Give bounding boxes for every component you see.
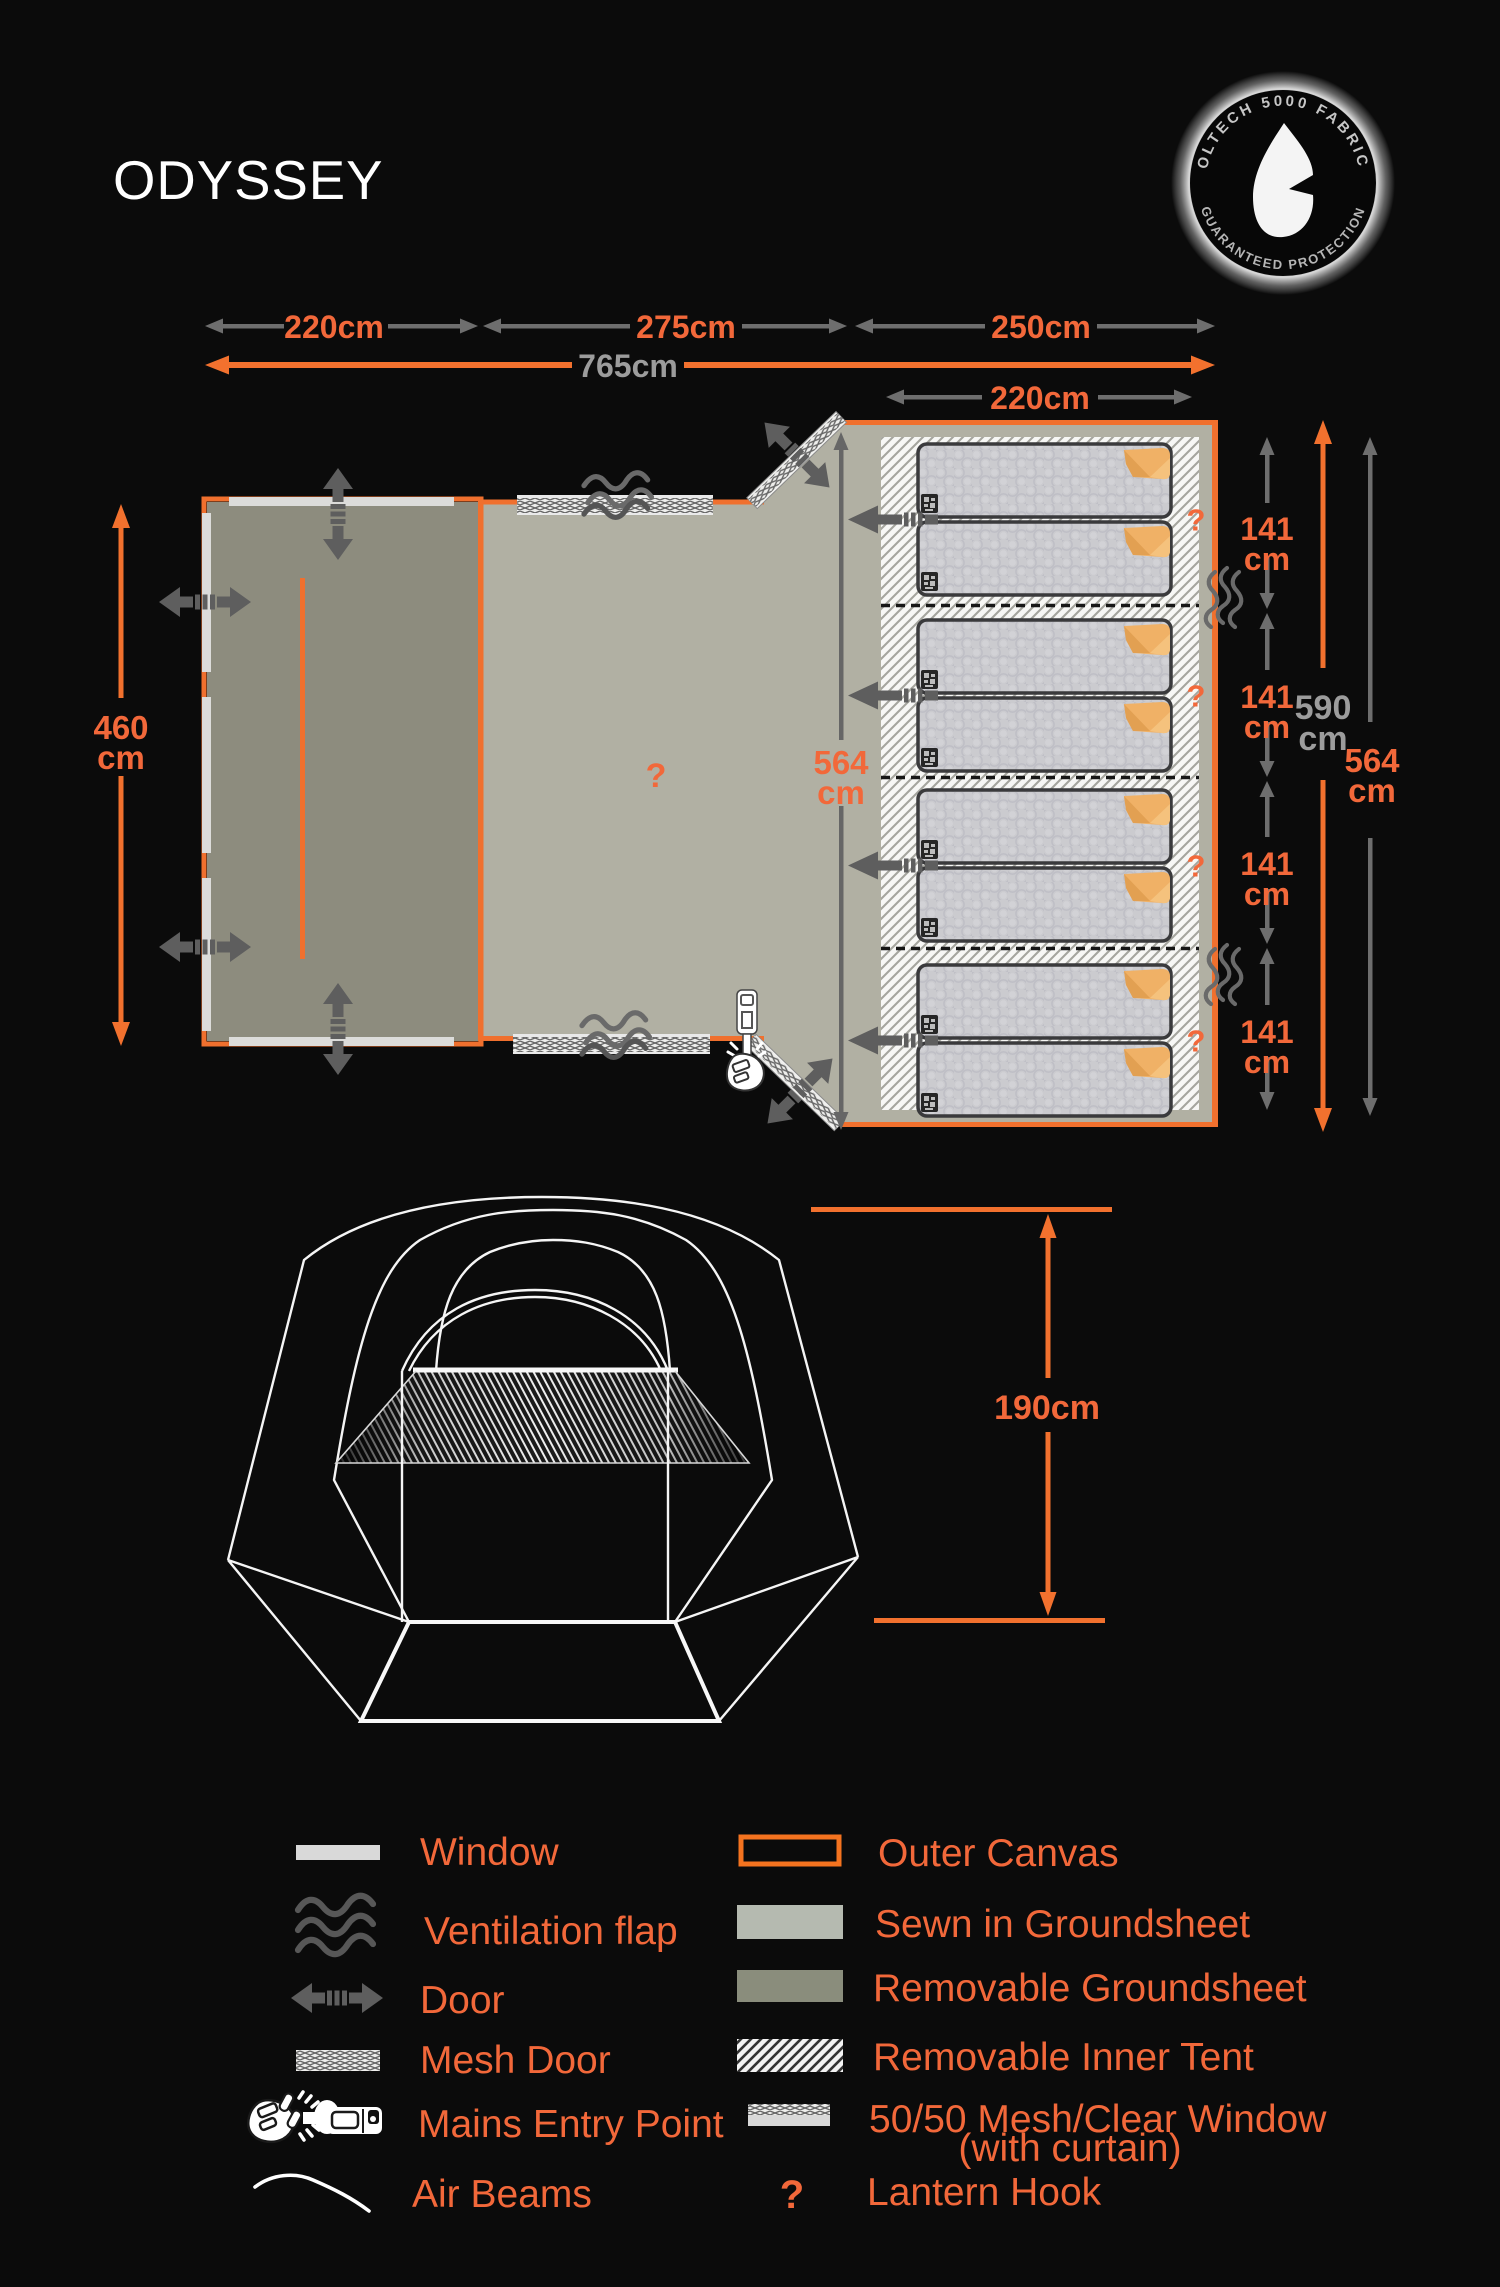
svg-text:cm: cm bbox=[97, 739, 145, 776]
svg-text:220cm: 220cm bbox=[990, 380, 1090, 416]
svg-text:Sewn in Groundsheet: Sewn in Groundsheet bbox=[875, 1903, 1250, 1946]
svg-text:cm: cm bbox=[1348, 772, 1396, 809]
svg-text:Lantern Hook: Lantern Hook bbox=[867, 2171, 1102, 2214]
svg-text:(with curtain): (with curtain) bbox=[958, 2127, 1181, 2170]
svg-text:?: ? bbox=[1187, 1024, 1206, 1059]
svg-text:?: ? bbox=[1187, 849, 1206, 884]
svg-text:?: ? bbox=[646, 757, 667, 795]
svg-text:Removable Groundsheet: Removable Groundsheet bbox=[873, 1967, 1307, 2010]
svg-text:Mesh Door: Mesh Door bbox=[420, 2039, 611, 2082]
svg-text:cm: cm bbox=[1244, 876, 1290, 912]
svg-text:Window: Window bbox=[420, 1831, 560, 1874]
svg-text:cm: cm bbox=[1244, 1044, 1290, 1080]
svg-text:765cm: 765cm bbox=[578, 348, 678, 384]
svg-text:cm: cm bbox=[817, 774, 865, 811]
svg-text:cm: cm bbox=[1244, 709, 1290, 745]
svg-text:?: ? bbox=[1187, 679, 1206, 714]
svg-text:190cm: 190cm bbox=[994, 1389, 1100, 1427]
svg-text:250cm: 250cm bbox=[991, 309, 1091, 345]
svg-text:Removable Inner Tent: Removable Inner Tent bbox=[873, 2036, 1254, 2079]
svg-text:?: ? bbox=[780, 2173, 804, 2217]
svg-text:Outer Canvas: Outer Canvas bbox=[878, 1832, 1119, 1875]
svg-text:cm: cm bbox=[1244, 541, 1290, 577]
svg-text:ODYSSEY: ODYSSEY bbox=[113, 150, 384, 211]
svg-text:275cm: 275cm bbox=[636, 309, 736, 345]
svg-text:Door: Door bbox=[420, 1979, 505, 2022]
svg-text:?: ? bbox=[1187, 503, 1206, 538]
svg-text:220cm: 220cm bbox=[284, 309, 384, 345]
svg-text:Air Beams: Air Beams bbox=[412, 2173, 592, 2216]
svg-text:Mains Entry Point: Mains Entry Point bbox=[418, 2103, 724, 2146]
svg-text:cm: cm bbox=[1298, 720, 1347, 758]
svg-text:Ventilation flap: Ventilation flap bbox=[424, 1910, 678, 1953]
